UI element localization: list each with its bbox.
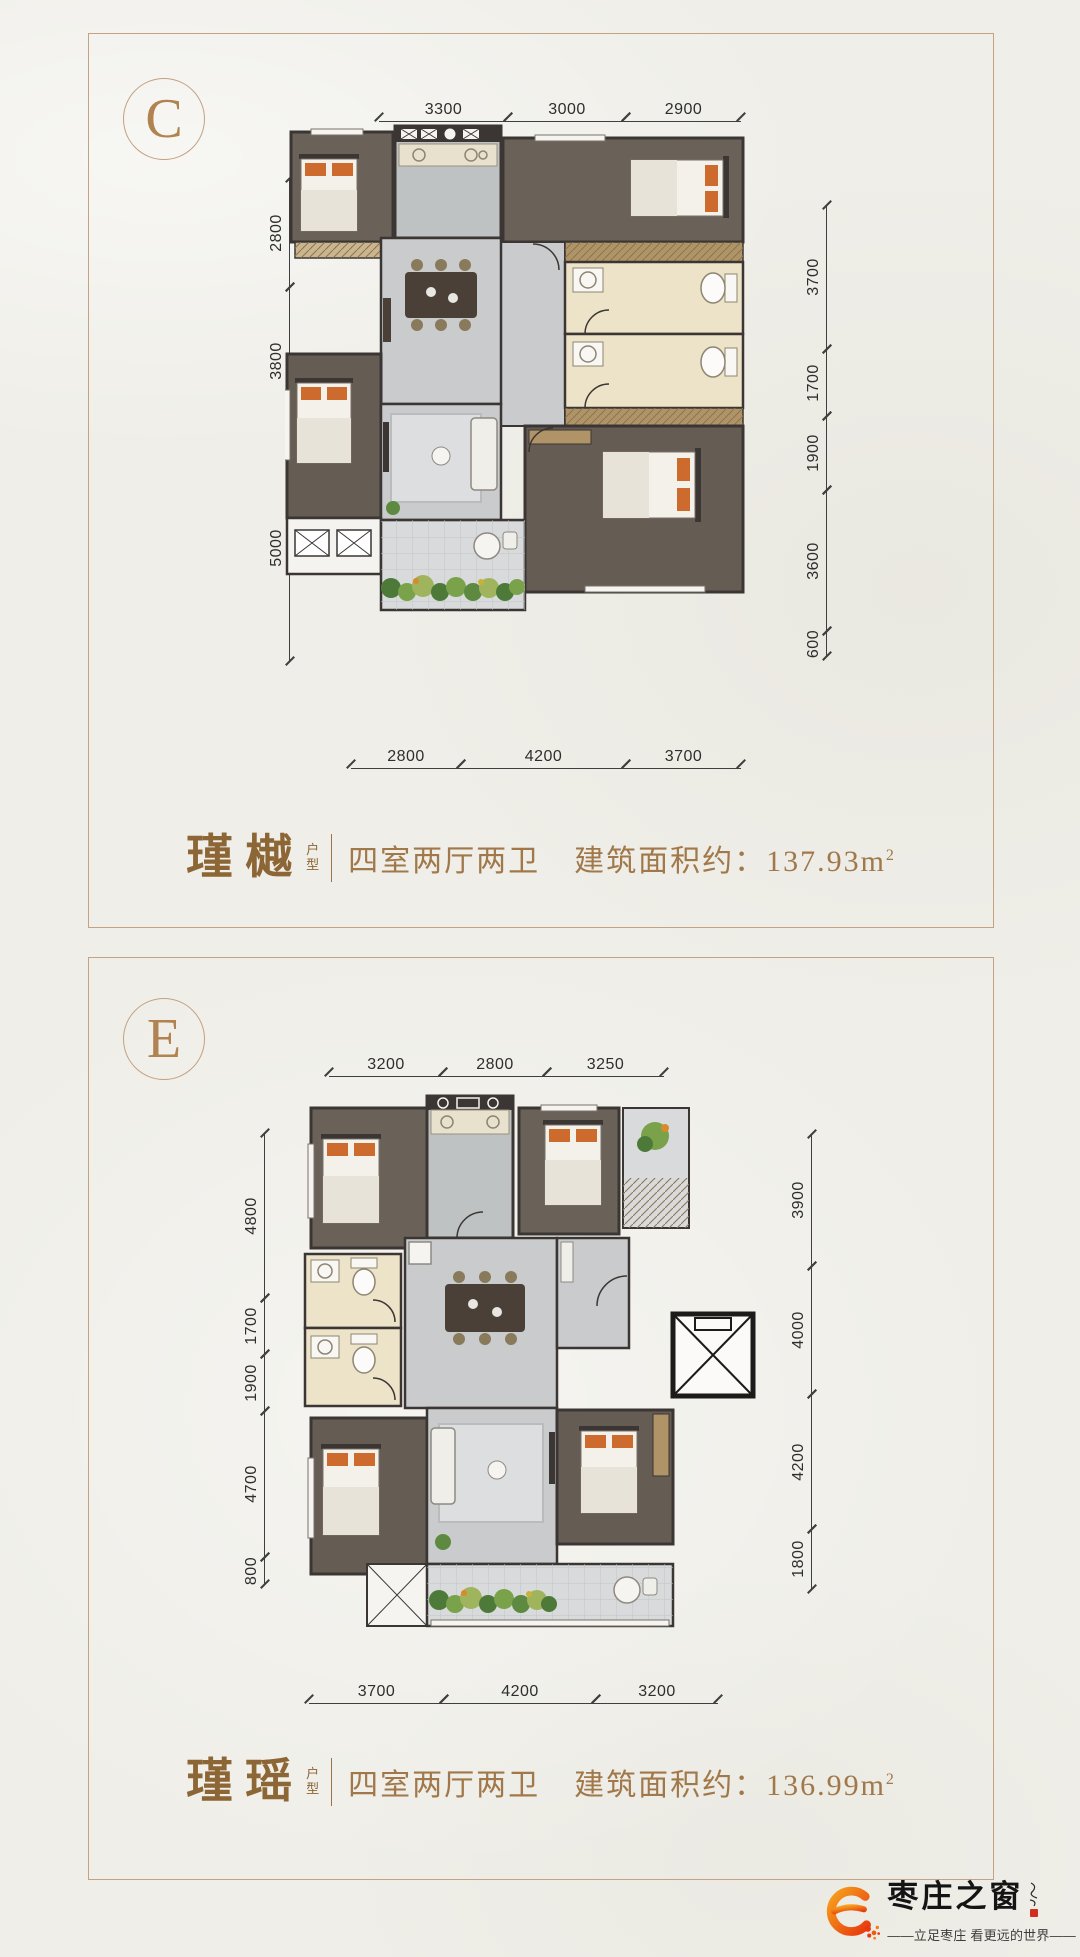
unit-name: 瑾瑶 — [186, 1759, 304, 1806]
hallway — [501, 242, 565, 426]
area-value: 137.93 — [766, 845, 861, 878]
bedroom-mid-left — [285, 354, 381, 518]
dim-label: 5000 — [268, 529, 286, 567]
caption-unit-e: 瑾瑶 户型 四室两厅两卫 建筑面积约：136.99m2 — [89, 1758, 993, 1806]
dim-segment: 4200 — [444, 1703, 596, 1704]
kitchen — [427, 1096, 513, 1238]
dim-segment: 3600 — [826, 490, 827, 631]
living-room — [381, 404, 501, 520]
area-unit: m — [861, 1769, 886, 1802]
caption-divider — [331, 1758, 332, 1806]
area-exponent: 2 — [886, 847, 896, 864]
dim-label: 3600 — [805, 542, 823, 580]
unit-type-label: 户型 — [306, 843, 321, 873]
patio — [381, 520, 525, 610]
dim-label: 2800 — [268, 214, 286, 252]
dim-segment: 1700 — [826, 349, 827, 416]
dim-label: 4700 — [243, 1465, 261, 1503]
master-bedroom — [525, 426, 743, 592]
unit-name: 瑾樾 — [186, 835, 304, 882]
bedroom-bottom-right — [557, 1410, 673, 1544]
dim-segment: 3200 — [596, 1703, 718, 1704]
elevator — [673, 1314, 753, 1396]
wardrobe-strip — [565, 242, 743, 262]
dim-label: 1900 — [243, 1364, 261, 1402]
panel-unit-e: E 3200 2800 3250 4800 1700 1900 4700 800… — [88, 957, 994, 1880]
unit-type-label: 户型 — [306, 1767, 321, 1797]
dim-segment: 1900 — [264, 1354, 265, 1411]
unit-c-badge: C — [123, 78, 205, 160]
dim-label: 3700 — [665, 748, 703, 766]
dim-segment: 1700 — [264, 1298, 265, 1354]
tagline: ——立足枣庄 看更远的世界—— — [887, 1925, 1076, 1944]
dim-label: 1700 — [805, 364, 823, 402]
brand-row: 枣庄之窗 — [887, 1880, 1076, 1918]
rooms-description: 四室两厅两卫 — [348, 836, 540, 880]
dim-segment: 1800 — [811, 1529, 812, 1589]
area-unit: m — [861, 845, 886, 878]
unit-e-badge: E — [123, 998, 205, 1080]
area-value: 136.99 — [766, 1769, 861, 1802]
dim-label: 3200 — [367, 1056, 405, 1074]
footer-logo: 枣庄之窗 ——立足枣庄 看更远的世界—— — [818, 1874, 1076, 1954]
dim-label: 1900 — [805, 434, 823, 472]
area-exponent: 2 — [886, 1771, 896, 1788]
floor-plan-c — [285, 122, 747, 697]
dim-label: 3700 — [358, 1683, 396, 1701]
bathroom-1 — [305, 1254, 401, 1328]
dim-segment: 4200 — [811, 1394, 812, 1529]
living-room — [427, 1408, 557, 1564]
bathroom-2 — [305, 1328, 401, 1406]
dim-label: 600 — [805, 629, 823, 657]
dim-label: 3300 — [425, 101, 463, 119]
balcony — [427, 1564, 673, 1626]
area-label: 建筑面积约： — [574, 1769, 766, 1802]
dim-segment: 600 — [826, 631, 827, 656]
bathroom-1 — [565, 262, 743, 334]
dim-segment: 3250 — [547, 1076, 664, 1077]
bedroom-top-left — [308, 1108, 427, 1248]
logo-text: 枣庄之窗 ——立足枣庄 看更远的世界—— — [887, 1880, 1076, 1944]
dim-segment: 3700 — [826, 205, 827, 349]
caption-divider — [331, 834, 332, 882]
unit-c-letter: C — [145, 91, 182, 147]
dim-label: 2900 — [665, 101, 703, 119]
bathroom-2 — [565, 334, 743, 408]
dim-segment: 4000 — [811, 1266, 812, 1394]
dim-label: 3000 — [548, 101, 586, 119]
area-text: 建筑面积约：136.99m2 — [574, 1760, 896, 1804]
dim-label: 800 — [243, 1556, 261, 1584]
dim-segment: 2800 — [351, 768, 461, 769]
dim-segment: 4200 — [461, 768, 626, 769]
bedroom-top-left — [291, 129, 393, 242]
kitchen — [395, 126, 501, 238]
bedroom-top-right — [519, 1105, 619, 1234]
entry — [557, 1238, 629, 1348]
dim-segment: 4700 — [264, 1411, 265, 1557]
flyer-page: C 3300 3000 2900 2800 3800 5000 3700 170… — [0, 0, 1080, 1957]
dim-segment: 3900 — [811, 1134, 812, 1266]
dim-label: 3250 — [587, 1056, 625, 1074]
dim-label: 2800 — [476, 1056, 514, 1074]
area-label: 建筑面积约： — [574, 845, 766, 878]
dining-room — [405, 1238, 557, 1408]
balcony-column-left — [367, 1564, 427, 1626]
dim-label: 3900 — [790, 1181, 808, 1219]
dim-segment: 4800 — [264, 1133, 265, 1298]
dim-label: 4000 — [790, 1311, 808, 1349]
bedroom-bottom-left — [308, 1418, 427, 1574]
dim-label: 4200 — [501, 1683, 539, 1701]
dim-segment: 3700 — [309, 1703, 444, 1704]
dim-label: 2800 — [387, 748, 425, 766]
rooms-description: 四室两厅两卫 — [348, 1760, 540, 1804]
dim-segment: 800 — [264, 1557, 265, 1584]
caption-unit-c: 瑾樾 户型 四室两厅两卫 建筑面积约：137.93m2 — [89, 834, 993, 882]
dining-room — [381, 238, 501, 404]
dim-label: 3800 — [268, 342, 286, 380]
dim-label: 1800 — [790, 1540, 808, 1578]
wardrobe-strip-2 — [565, 408, 743, 426]
dim-label: 4200 — [525, 748, 563, 766]
dim-label: 3700 — [805, 258, 823, 296]
dim-label: 4200 — [790, 1443, 808, 1481]
dim-label: 3200 — [638, 1683, 676, 1701]
closet-bottom-left — [287, 518, 381, 574]
dim-label: 1700 — [243, 1307, 261, 1345]
floor-plan-e — [297, 1088, 757, 1648]
dim-label: 4800 — [243, 1197, 261, 1235]
dim-segment: 2800 — [443, 1076, 547, 1077]
bedroom-top-right — [503, 135, 743, 242]
unit-e-letter: E — [147, 1011, 181, 1067]
area-text: 建筑面积约：137.93m2 — [574, 836, 896, 880]
dim-segment: 3200 — [329, 1076, 443, 1077]
e-mark-icon — [818, 1874, 881, 1954]
dim-segment: 1900 — [826, 416, 827, 490]
brand-name: 枣庄之窗 — [887, 1880, 1023, 1914]
laundry-balcony — [295, 242, 393, 258]
corner-terrace — [623, 1108, 689, 1228]
panel-unit-c: C 3300 3000 2900 2800 3800 5000 3700 170… — [88, 33, 994, 928]
artist-seal — [1027, 1880, 1041, 1918]
dim-segment: 3700 — [626, 768, 741, 769]
